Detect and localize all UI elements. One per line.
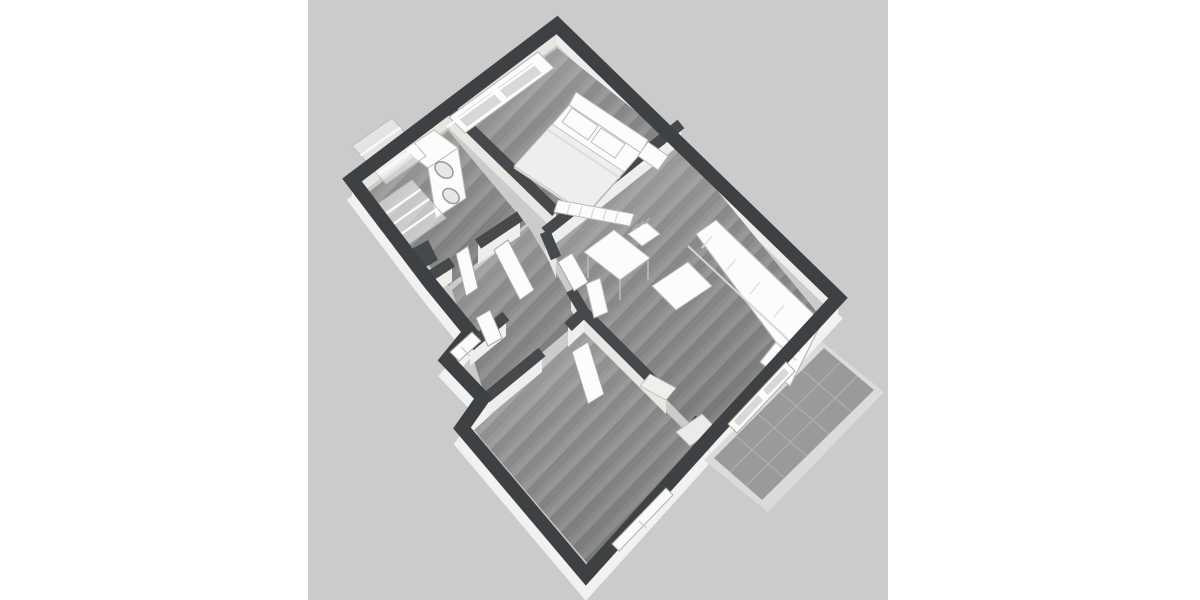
floorplan-3d-svg <box>0 0 1200 600</box>
floorplan-render-stage <box>0 0 1200 600</box>
